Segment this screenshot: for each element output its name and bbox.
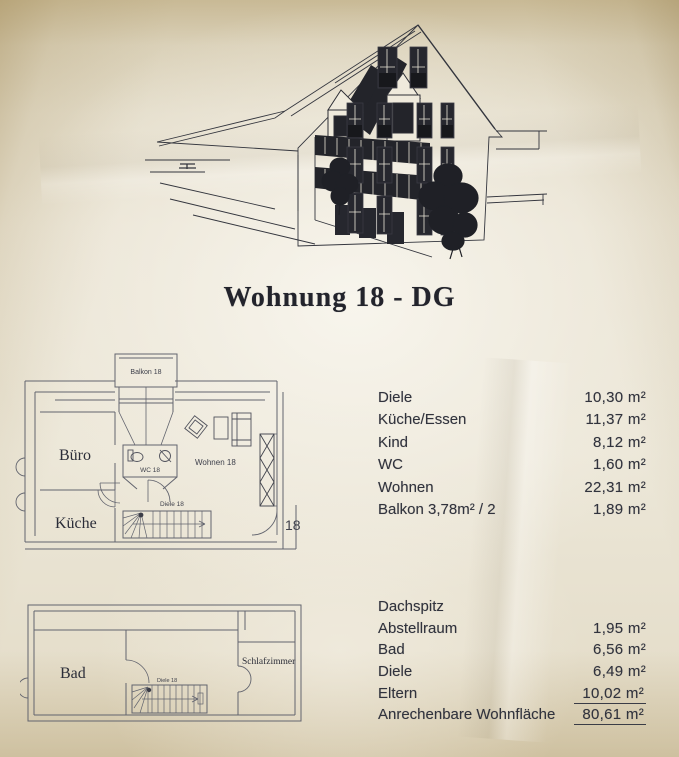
wc-fixtures xyxy=(128,450,171,462)
area-row: WC1,60 m² xyxy=(378,456,646,478)
scanned-floorplan-page: Wohnung 18 - DG xyxy=(0,0,679,757)
page-title: Wohnung 18 - DG xyxy=(0,282,679,314)
section-header: Dachspitz xyxy=(378,598,444,615)
area-row: Küche/Essen11,37 m² xyxy=(378,411,646,433)
room-area: 6,49 m² xyxy=(593,663,646,680)
furniture xyxy=(185,413,251,446)
room-area: 6,56 m² xyxy=(593,641,646,658)
area-row-total: Anrechenbare Wohnfläche80,61 m² xyxy=(378,706,646,728)
room-area: 10,02 m² xyxy=(574,685,646,704)
room-label: Kind xyxy=(378,434,408,451)
room-area: 8,12 m² xyxy=(593,434,646,451)
room-label: Abstellraum xyxy=(378,620,457,637)
bad-label: Bad xyxy=(60,665,86,682)
floorplan-dg: Balkon 18 Büro Küche WC 18 Wohnen 18 Die… xyxy=(15,350,310,560)
buero-label: Büro xyxy=(59,447,91,464)
room-label: Küche/Essen xyxy=(378,411,466,428)
room-area: 1,89 m² xyxy=(593,501,646,518)
room-label: Eltern xyxy=(378,685,417,702)
plan-dachspitz-labels: Bad Schlafzimmer Diele 18 xyxy=(60,656,296,684)
area-row: Kind8,12 m² xyxy=(378,434,646,456)
total-label: Anrechenbare Wohnfläche xyxy=(378,706,555,723)
chimney-hatch xyxy=(260,434,274,506)
kueche-label: Küche xyxy=(55,515,97,532)
room-area: 1,60 m² xyxy=(593,456,646,473)
area-row: Abstellraum1,95 m² xyxy=(378,620,646,642)
unit-number: 18 xyxy=(285,517,301,533)
house-sketch xyxy=(135,15,560,260)
room-area: 22,31 m² xyxy=(584,479,646,496)
wohnen-label: Wohnen 18 xyxy=(195,458,236,467)
floorplan-dachspitz: Bad Schlafzimmer Diele 18 xyxy=(20,598,310,733)
room-label: Balkon 3,78m² / 2 xyxy=(378,501,496,518)
room-label: Wohnen xyxy=(378,479,434,496)
area-row: Wohnen22,31 m² xyxy=(378,479,646,501)
area-row-header: Dachspitz xyxy=(378,598,646,620)
room-area: 11,37 m² xyxy=(586,411,646,428)
diele-label: Diele 18 xyxy=(160,501,184,508)
stair-post xyxy=(139,513,144,518)
area-row: Bad6,56 m² xyxy=(378,641,646,663)
balkon-label: Balkon 18 xyxy=(130,369,161,376)
area-list-dg: Diele10,30 m² Küche/Essen11,37 m² Kind8,… xyxy=(378,389,646,523)
diele-label: Diele 18 xyxy=(157,678,177,684)
room-label: WC xyxy=(378,456,403,473)
wc-label: WC 18 xyxy=(140,467,160,474)
total-area: 80,61 m² xyxy=(574,706,646,725)
room-area: 1,95 m² xyxy=(593,620,646,637)
room-label: Bad xyxy=(378,641,405,658)
area-list-dachspitz: Dachspitz Abstellraum1,95 m² Bad6,56 m² … xyxy=(378,598,646,728)
area-row: Diele10,30 m² xyxy=(378,389,646,411)
room-label: Diele xyxy=(378,663,412,680)
room-label: Diele xyxy=(378,389,412,406)
room-area: 10,30 m² xyxy=(584,389,646,406)
area-row: Eltern10,02 m² xyxy=(378,685,646,707)
area-row: Balkon 3,78m² / 21,89 m² xyxy=(378,501,646,523)
area-row: Diele6,49 m² xyxy=(378,663,646,685)
schlafzimmer-label: Schlafzimmer xyxy=(242,656,296,667)
stair-post xyxy=(147,688,151,692)
